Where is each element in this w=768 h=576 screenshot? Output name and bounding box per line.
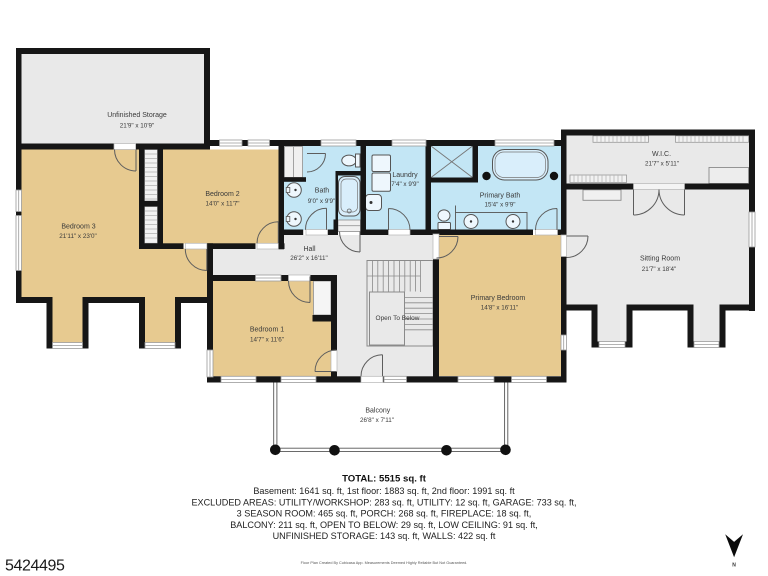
svg-text:Floor Plan Created By Cubicasa: Floor Plan Created By Cubicasa App. Meas… — [301, 561, 468, 565]
svg-text:14'0" x 11'7": 14'0" x 11'7" — [205, 201, 239, 208]
svg-text:21'9" x 10'9": 21'9" x 10'9" — [120, 123, 155, 130]
svg-text:Bedroom 2: Bedroom 2 — [205, 191, 239, 198]
svg-text:21'7" x 18'4": 21'7" x 18'4" — [642, 266, 677, 273]
svg-text:N: N — [732, 563, 736, 569]
svg-text:UNFINISHED STORAGE: 143 sq. ft: UNFINISHED STORAGE: 143 sq. ft, WALLS: 4… — [273, 531, 496, 541]
svg-text:5424495: 5424495 — [5, 558, 65, 575]
svg-text:21'11" x 23'0": 21'11" x 23'0" — [59, 233, 97, 240]
svg-text:Sitting Room: Sitting Room — [640, 256, 680, 263]
svg-text:9'0" x 9'9": 9'0" x 9'9" — [308, 198, 336, 205]
svg-text:14'8" x 16'11": 14'8" x 16'11" — [481, 305, 519, 312]
svg-text:3 SEASON ROOM: 465 sq. ft, POR: 3 SEASON ROOM: 465 sq. ft, PORCH: 268 sq… — [237, 509, 532, 519]
svg-text:BALCONY: 211 sq. ft, OPEN TO B: BALCONY: 211 sq. ft, OPEN TO BELOW: 29 s… — [230, 520, 538, 530]
svg-text:Hall: Hall — [303, 246, 316, 253]
svg-text:21'7" x 5'11": 21'7" x 5'11" — [645, 161, 679, 168]
svg-text:7'4" x 9'9": 7'4" x 9'9" — [391, 181, 419, 188]
svg-text:Unfinished Storage: Unfinished Storage — [107, 112, 167, 119]
svg-text:26'8" x 7'11": 26'8" x 7'11" — [360, 417, 394, 424]
svg-text:Bath: Bath — [315, 188, 330, 195]
svg-text:EXCLUDED AREAS: UTILITY/WORKSH: EXCLUDED AREAS: UTILITY/WORKSHOP: 283 sq… — [191, 497, 576, 507]
svg-text:Primary Bedroom: Primary Bedroom — [471, 295, 526, 302]
svg-text:Laundry: Laundry — [392, 172, 418, 179]
svg-text:TOTAL: 5515 sq. ft: TOTAL: 5515 sq. ft — [342, 474, 427, 485]
svg-text:Open To Below: Open To Below — [376, 315, 420, 322]
svg-text:26'2" x 16'11": 26'2" x 16'11" — [290, 255, 328, 262]
svg-text:Basement: 1641 sq. ft, 1st flo: Basement: 1641 sq. ft, 1st floor: 1883 s… — [253, 486, 515, 496]
svg-text:W.I.C.: W.I.C. — [652, 151, 671, 158]
svg-text:15'4" x 9'9": 15'4" x 9'9" — [484, 202, 515, 209]
svg-text:Balcony: Balcony — [365, 408, 390, 415]
svg-text:Primary Bath: Primary Bath — [480, 193, 521, 200]
svg-text:Bedroom 1: Bedroom 1 — [250, 327, 284, 334]
svg-text:14'7" x 11'6": 14'7" x 11'6" — [250, 337, 284, 344]
svg-text:Bedroom 3: Bedroom 3 — [61, 224, 95, 231]
